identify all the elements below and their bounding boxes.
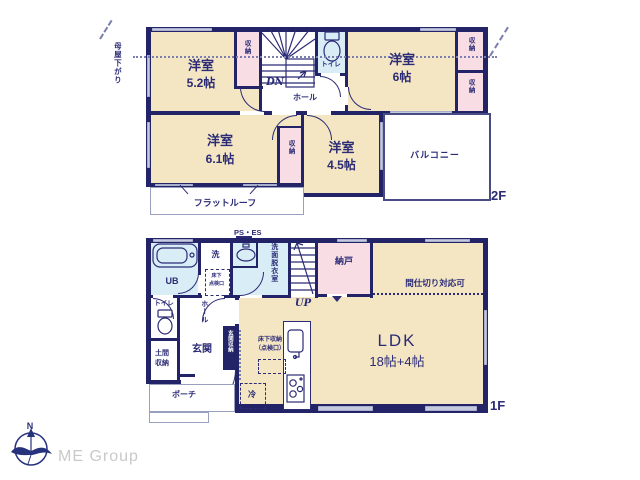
stairs-up-icon (291, 240, 315, 295)
room-4-5-name: 洋室 (304, 140, 379, 156)
porch-label: ポーチ (149, 390, 219, 400)
entrance-label: 玄関 (180, 344, 224, 357)
stove-icon (286, 374, 306, 404)
eaves-note-label: 母屋下がり (113, 42, 122, 85)
wall (315, 238, 318, 298)
wall (230, 238, 233, 298)
kitchen-sink-icon (286, 328, 306, 362)
bathtub-icon (152, 243, 198, 268)
window (152, 28, 212, 31)
washbasin-icon (234, 244, 258, 264)
window (147, 122, 150, 168)
door-gap (235, 300, 239, 324)
underfloor-storage-line1: 床下収納 (248, 337, 292, 345)
floor1-label: 1F (490, 398, 516, 414)
ldk-size-label: 18帖+4帖 (352, 354, 442, 370)
underfloor-storage-line2: （点検口） (248, 346, 292, 354)
storeroom-label: 納戸 (318, 256, 370, 267)
pipe-space-label: PS・ES (234, 228, 278, 237)
window (243, 184, 277, 186)
window (425, 239, 470, 242)
window (425, 406, 477, 411)
room-6-size: 6帖 (352, 70, 452, 85)
closet-label: 収納 (286, 140, 294, 155)
brand-logo-text: ME Group (58, 448, 139, 466)
stairs-dn-label: DN (262, 77, 288, 90)
underfloor-hatch-line1: 床下 (205, 273, 228, 279)
stairs-up-label: UP (288, 298, 318, 311)
window (147, 55, 150, 97)
window (420, 28, 456, 31)
eaves-diagonal (489, 27, 509, 57)
room-4-5-size: 4.5帖 (304, 158, 379, 173)
window (337, 239, 367, 242)
floor2-label: 2F (491, 188, 517, 204)
doma-storage-line2: 収納 (146, 360, 178, 369)
room-6-1-size: 6.1帖 (165, 152, 275, 167)
toilet-icon-1f (154, 308, 176, 336)
washer-label: 洗 (201, 250, 230, 260)
toilet-icon-2f (322, 31, 342, 63)
wall (146, 338, 180, 341)
unit-bath-label: UB (151, 276, 193, 287)
underfloor-storage-box (258, 359, 286, 374)
eaves-diagonal (99, 20, 112, 40)
ldk-label: LDK (357, 330, 437, 351)
toilet-label-2f: トイレ (316, 61, 346, 69)
closet-label: 収納 (466, 37, 474, 52)
wall (370, 238, 373, 298)
window (318, 406, 373, 411)
room-5-2-size: 5.2帖 (156, 76, 246, 91)
hall-label-1f: ホール (199, 300, 208, 324)
fixture-line (233, 266, 258, 268)
closet-label: 収納 (466, 79, 474, 94)
compass-north-label: N (24, 421, 36, 432)
wall (235, 378, 239, 411)
window (153, 239, 193, 242)
room-6-name: 洋室 (352, 52, 452, 68)
floorplan-page: 洋室 5.2帖 洋室 6帖 洋室 6.1帖 洋室 4.5帖 収納 収納 収納 収… (0, 0, 640, 480)
hall-label-2f: ホール (262, 93, 348, 103)
wall (177, 374, 195, 377)
storeroom (318, 241, 370, 294)
fridge-label: 冷 (240, 390, 264, 400)
porch-step (149, 412, 209, 423)
partition-note-label: 間仕切り対応可 (385, 278, 485, 289)
flat-roof-label: フラットルーフ (160, 198, 290, 209)
room-6-1-name: 洋室 (165, 133, 275, 149)
kitchen-dotted-line (239, 330, 241, 380)
wall (455, 70, 486, 73)
wall (455, 27, 458, 111)
doma-storage-line1: 土間 (146, 350, 178, 359)
wall (301, 193, 387, 197)
window (484, 310, 487, 365)
washroom-label: 洗面脱衣室 (269, 243, 278, 283)
balcony-label: バルコニー (385, 150, 485, 161)
room-5-2-name: 洋室 (156, 58, 246, 74)
partition-dotted-line (373, 293, 483, 295)
closet-label: 収納 (242, 40, 250, 55)
toilet-label-1f: トイレ (149, 300, 179, 308)
window (155, 184, 193, 186)
sliding-door-mark (332, 296, 342, 302)
ldk-upper (373, 243, 483, 297)
entrance-storage-label: 玄関収納 (226, 330, 233, 352)
underfloor-hatch-line2: 点検口 (205, 281, 228, 287)
wall (345, 105, 348, 111)
